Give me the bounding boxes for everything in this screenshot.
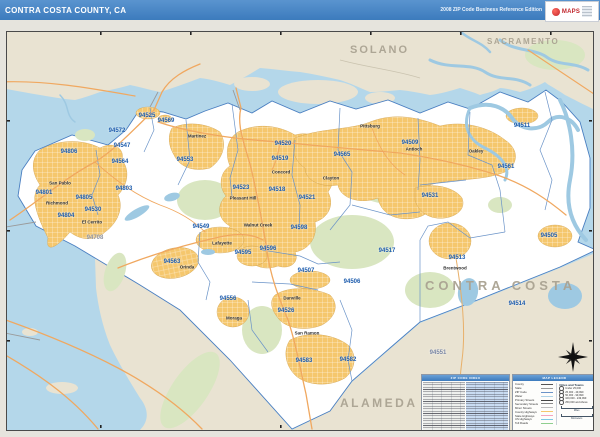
zip-code-label: 94596 (260, 246, 277, 252)
city-label: Oakley (469, 149, 484, 154)
city-label: Walnut Creek (244, 223, 273, 228)
legend-line-swatch (541, 388, 553, 389)
zip-code-label: 94553 (177, 157, 194, 163)
zip-code-label: 94563 (164, 259, 181, 265)
zip-code-label: 94517 (379, 248, 396, 254)
legend-row-label: Toll Roads (515, 421, 541, 425)
zip-code-label: 94598 (291, 225, 308, 231)
legend-line-swatch (541, 419, 553, 420)
zip-code-label: 94511 (514, 123, 530, 129)
zip-code-label: 94565 (334, 152, 351, 158)
legend-line-samples: County State ZIP Code Water Primary Stre… (515, 383, 553, 426)
zip-code-label: 94505 (541, 233, 558, 239)
legend-line-swatch (541, 403, 553, 404)
title-bar: CONTRA COSTA COUNTY, CA 2008 ZIP Code Bu… (0, 0, 600, 20)
zip-code-label: 94801 (36, 190, 53, 196)
zip-code-label: 94583 (296, 358, 313, 364)
zip-index-column-right (466, 382, 508, 431)
map-title: CONTRA COSTA COUNTY, CA (5, 6, 126, 15)
map-canvas: NAPASOLANOSACRAMENTOALAMEDACONTRA COSTA … (6, 31, 594, 431)
legend-line-swatch (541, 411, 553, 412)
city-label: San Ramon (295, 331, 320, 336)
zip-index-panel: ZIP CODE INDEX (421, 374, 510, 431)
logo-detail-icon (582, 6, 592, 17)
logo-text: MAPS (562, 9, 580, 15)
scale-miles-label: Miles (574, 409, 580, 412)
legend-line-swatch (541, 407, 553, 408)
zip-code-label: 94530 (85, 207, 102, 213)
scale-bar-km: Kilometers (559, 414, 594, 420)
zip-code-wall-map-page: { "header": { "title": "CONTRA COSTA COU… (0, 0, 600, 437)
city-label: Pleasant Hill (230, 196, 257, 201)
zip-code-label: 94561 (498, 164, 515, 170)
neighbor-county-label: SOLANO (350, 44, 409, 56)
city-class-row: 250,000 and Above (559, 401, 594, 404)
city-label: Martinez (188, 134, 206, 139)
city-label: Lafayette (212, 241, 232, 246)
zip-code-label: 94525 (139, 113, 156, 119)
legend-cities-column: Cities and Towns Under 25,00025,000 - 49… (556, 383, 594, 426)
neighbor-county-label: SACRAMENTO (487, 37, 559, 46)
city-label: Brentwood (443, 266, 467, 271)
zip-code-label: 94514 (509, 301, 526, 307)
zip-code-label: 94506 (344, 279, 361, 285)
cities-towns-title: Cities and Towns (559, 383, 594, 387)
city-label: Clayton (323, 176, 340, 181)
zip-code-label: 94595 (235, 250, 252, 256)
zip-index-rows (422, 381, 509, 431)
legend-line-swatch (541, 392, 553, 393)
zip-code-label: 94556 (220, 296, 237, 302)
city-label: Concord (272, 170, 291, 175)
city-label: Moraga (226, 316, 242, 321)
neighbor-county-label: CONTRA COSTA (425, 278, 576, 293)
city-label: Danville (283, 296, 300, 301)
zip-code-label: 94804 (58, 213, 75, 219)
zip-code-label: 94572 (109, 128, 126, 134)
zip-code-label: 94708 (87, 235, 104, 241)
city-label: El Cerrito (82, 220, 102, 225)
zip-code-label: 94549 (193, 224, 210, 230)
logo-globe-icon (552, 8, 560, 16)
zip-code-label: 94805 (76, 195, 93, 201)
legend-line-swatch (541, 396, 553, 397)
zip-code-label: 94509 (402, 140, 419, 146)
zip-code-label: 94520 (275, 141, 292, 147)
zip-index-column-left (423, 382, 465, 431)
zip-code-label: 94806 (61, 149, 78, 155)
city-label: San Pablo (49, 181, 71, 186)
city-label: Richmond (46, 201, 68, 206)
zip-code-label: 94518 (269, 187, 286, 193)
zip-code-label: 94531 (422, 193, 439, 199)
zip-code-label: 94526 (278, 308, 295, 314)
zip-code-label: 94521 (299, 195, 316, 201)
legend-line-swatch (541, 423, 553, 424)
legend-line-swatch (541, 415, 553, 416)
legend-line-swatch (541, 400, 553, 401)
city-label: Orinda (180, 265, 195, 270)
zip-code-label: 94507 (298, 268, 315, 274)
zip-code-label: 94582 (340, 357, 357, 363)
legend-body: County State ZIP Code Water Primary Stre… (513, 381, 594, 427)
zip-code-label: 94569 (158, 118, 175, 124)
city-label: Antioch (406, 147, 423, 152)
zip-code-label: 94519 (272, 156, 289, 162)
zip-code-label: 94564 (112, 159, 129, 165)
scale-km-label: Kilometers (571, 417, 582, 420)
publisher-logo: MAPS (545, 1, 599, 22)
zip-code-label: 94551 (430, 350, 447, 356)
zip-code-label: 94803 (116, 186, 133, 192)
zip-code-label: 94513 (449, 255, 466, 261)
map-world: NAPASOLANOSACRAMENTOALAMEDACONTRA COSTA … (6, 31, 594, 431)
zip-code-label: 94523 (233, 185, 250, 191)
map-legend-panel: MAP LEGEND County State ZIP Code Water (512, 374, 594, 431)
legend-row: Toll Roads (515, 421, 553, 425)
neighbor-county-label: ALAMEDA (340, 396, 418, 410)
city-label: Pittsburg (360, 124, 380, 129)
legend-line-swatch (541, 384, 553, 385)
zip-code-label: 94547 (114, 143, 131, 149)
scale-bar-miles: Miles (559, 406, 594, 412)
basemap-graphics (6, 31, 594, 431)
compass-rose-icon (558, 342, 588, 372)
edition-label: 2008 ZIP Code Business Reference Edition (440, 7, 542, 13)
